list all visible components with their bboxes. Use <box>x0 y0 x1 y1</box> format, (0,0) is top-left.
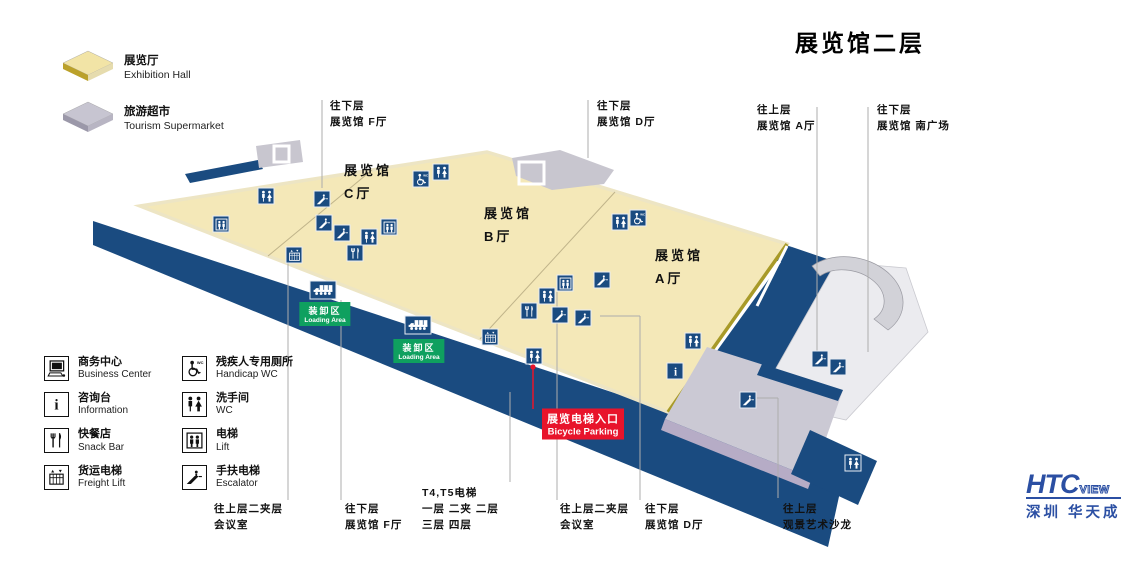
legend-item-exhibition-hall: 展览厅Exhibition Hall <box>62 50 224 87</box>
facility-label-zh: 电梯 <box>216 428 238 441</box>
facility-label-zh: 货运电梯 <box>78 465 125 478</box>
legend-label-zh: 展览厅 <box>124 54 191 69</box>
facility-legend-item: 货运电梯Freight Lift <box>44 465 182 490</box>
facility-label-en: Escalator <box>216 478 260 490</box>
facility-text: 洗手间WC <box>216 392 249 417</box>
facility-legend-item: 快餐店Snack Bar <box>44 428 182 453</box>
facility-text: 咨询台Information <box>78 392 128 417</box>
facility-text: 残疾人专用厕所Handicap WC <box>216 356 293 381</box>
pc-icon <box>44 356 69 381</box>
facility-legend-item: 电梯Lift <box>182 428 293 453</box>
facility-label-en: Information <box>78 405 128 417</box>
facility-text: 电梯Lift <box>216 428 238 453</box>
facility-legend-item: 咨询台Information <box>44 392 182 417</box>
top-left-wall <box>185 160 263 183</box>
facility-label-en: Lift <box>216 442 238 454</box>
facility-text: 商务中心Business Center <box>78 356 151 381</box>
facility-label-en: WC <box>216 405 249 417</box>
brand-name: HTC <box>1026 473 1079 496</box>
brand-suffix: VIEW <box>1080 484 1110 496</box>
facility-legend-item: 残疾人专用厕所Handicap WC <box>182 356 293 381</box>
lift-icon <box>182 428 207 453</box>
yellow-slab-icon <box>62 50 114 87</box>
hc-icon <box>182 356 207 381</box>
esc-icon <box>182 465 207 490</box>
facility-text: 手扶电梯Escalator <box>216 465 260 490</box>
gray-slab-icon <box>62 101 114 138</box>
floor-plan-page: WC <box>0 0 1133 573</box>
facility-label-zh: 洗手间 <box>216 392 249 405</box>
legend-area-types: 展览厅Exhibition Hall 旅游超市Tourism Supermark… <box>62 50 224 152</box>
facility-legend-item: 手扶电梯Escalator <box>182 465 293 490</box>
facility-text: 货运电梯Freight Lift <box>78 465 125 490</box>
facility-label-en: Freight Lift <box>78 478 125 490</box>
facility-label-zh: 残疾人专用厕所 <box>216 356 293 369</box>
facility-label-zh: 手扶电梯 <box>216 465 260 478</box>
legend-label-en: Exhibition Hall <box>124 69 191 82</box>
sn-icon <box>44 428 69 453</box>
facility-label-en: Snack Bar <box>78 442 124 454</box>
legend-item-text: 展览厅Exhibition Hall <box>124 54 191 82</box>
legend-facilities: 商务中心Business Center咨询台Information快餐店Snac… <box>44 356 293 490</box>
facility-label-zh: 咨询台 <box>78 392 128 405</box>
wc-icon <box>182 392 207 417</box>
facility-label-en: Handicap WC <box>216 369 293 381</box>
brand-logo: HTC VIEW 深圳 华天成 <box>1026 473 1121 522</box>
legend-item-tourism-supermarket: 旅游超市Tourism Supermarket <box>62 101 224 138</box>
facility-label-en: Business Center <box>78 369 151 381</box>
legend-item-text: 旅游超市Tourism Supermarket <box>124 105 224 133</box>
facility-legend-item: 洗手间WC <box>182 392 293 417</box>
page-title: 展览馆二层 <box>795 24 925 58</box>
legend-label-zh: 旅游超市 <box>124 105 224 120</box>
facility-label-zh: 商务中心 <box>78 356 151 369</box>
fr-icon <box>44 465 69 490</box>
facility-label-zh: 快餐店 <box>78 428 124 441</box>
roof-structure-left <box>256 140 303 168</box>
brand-logo-row: HTC VIEW <box>1026 473 1121 499</box>
legend-label-en: Tourism Supermarket <box>124 120 224 133</box>
brand-subtitle: 深圳 华天成 <box>1026 501 1121 522</box>
facility-legend-item: 商务中心Business Center <box>44 356 182 381</box>
info-icon <box>44 392 69 417</box>
facility-text: 快餐店Snack Bar <box>78 428 124 453</box>
